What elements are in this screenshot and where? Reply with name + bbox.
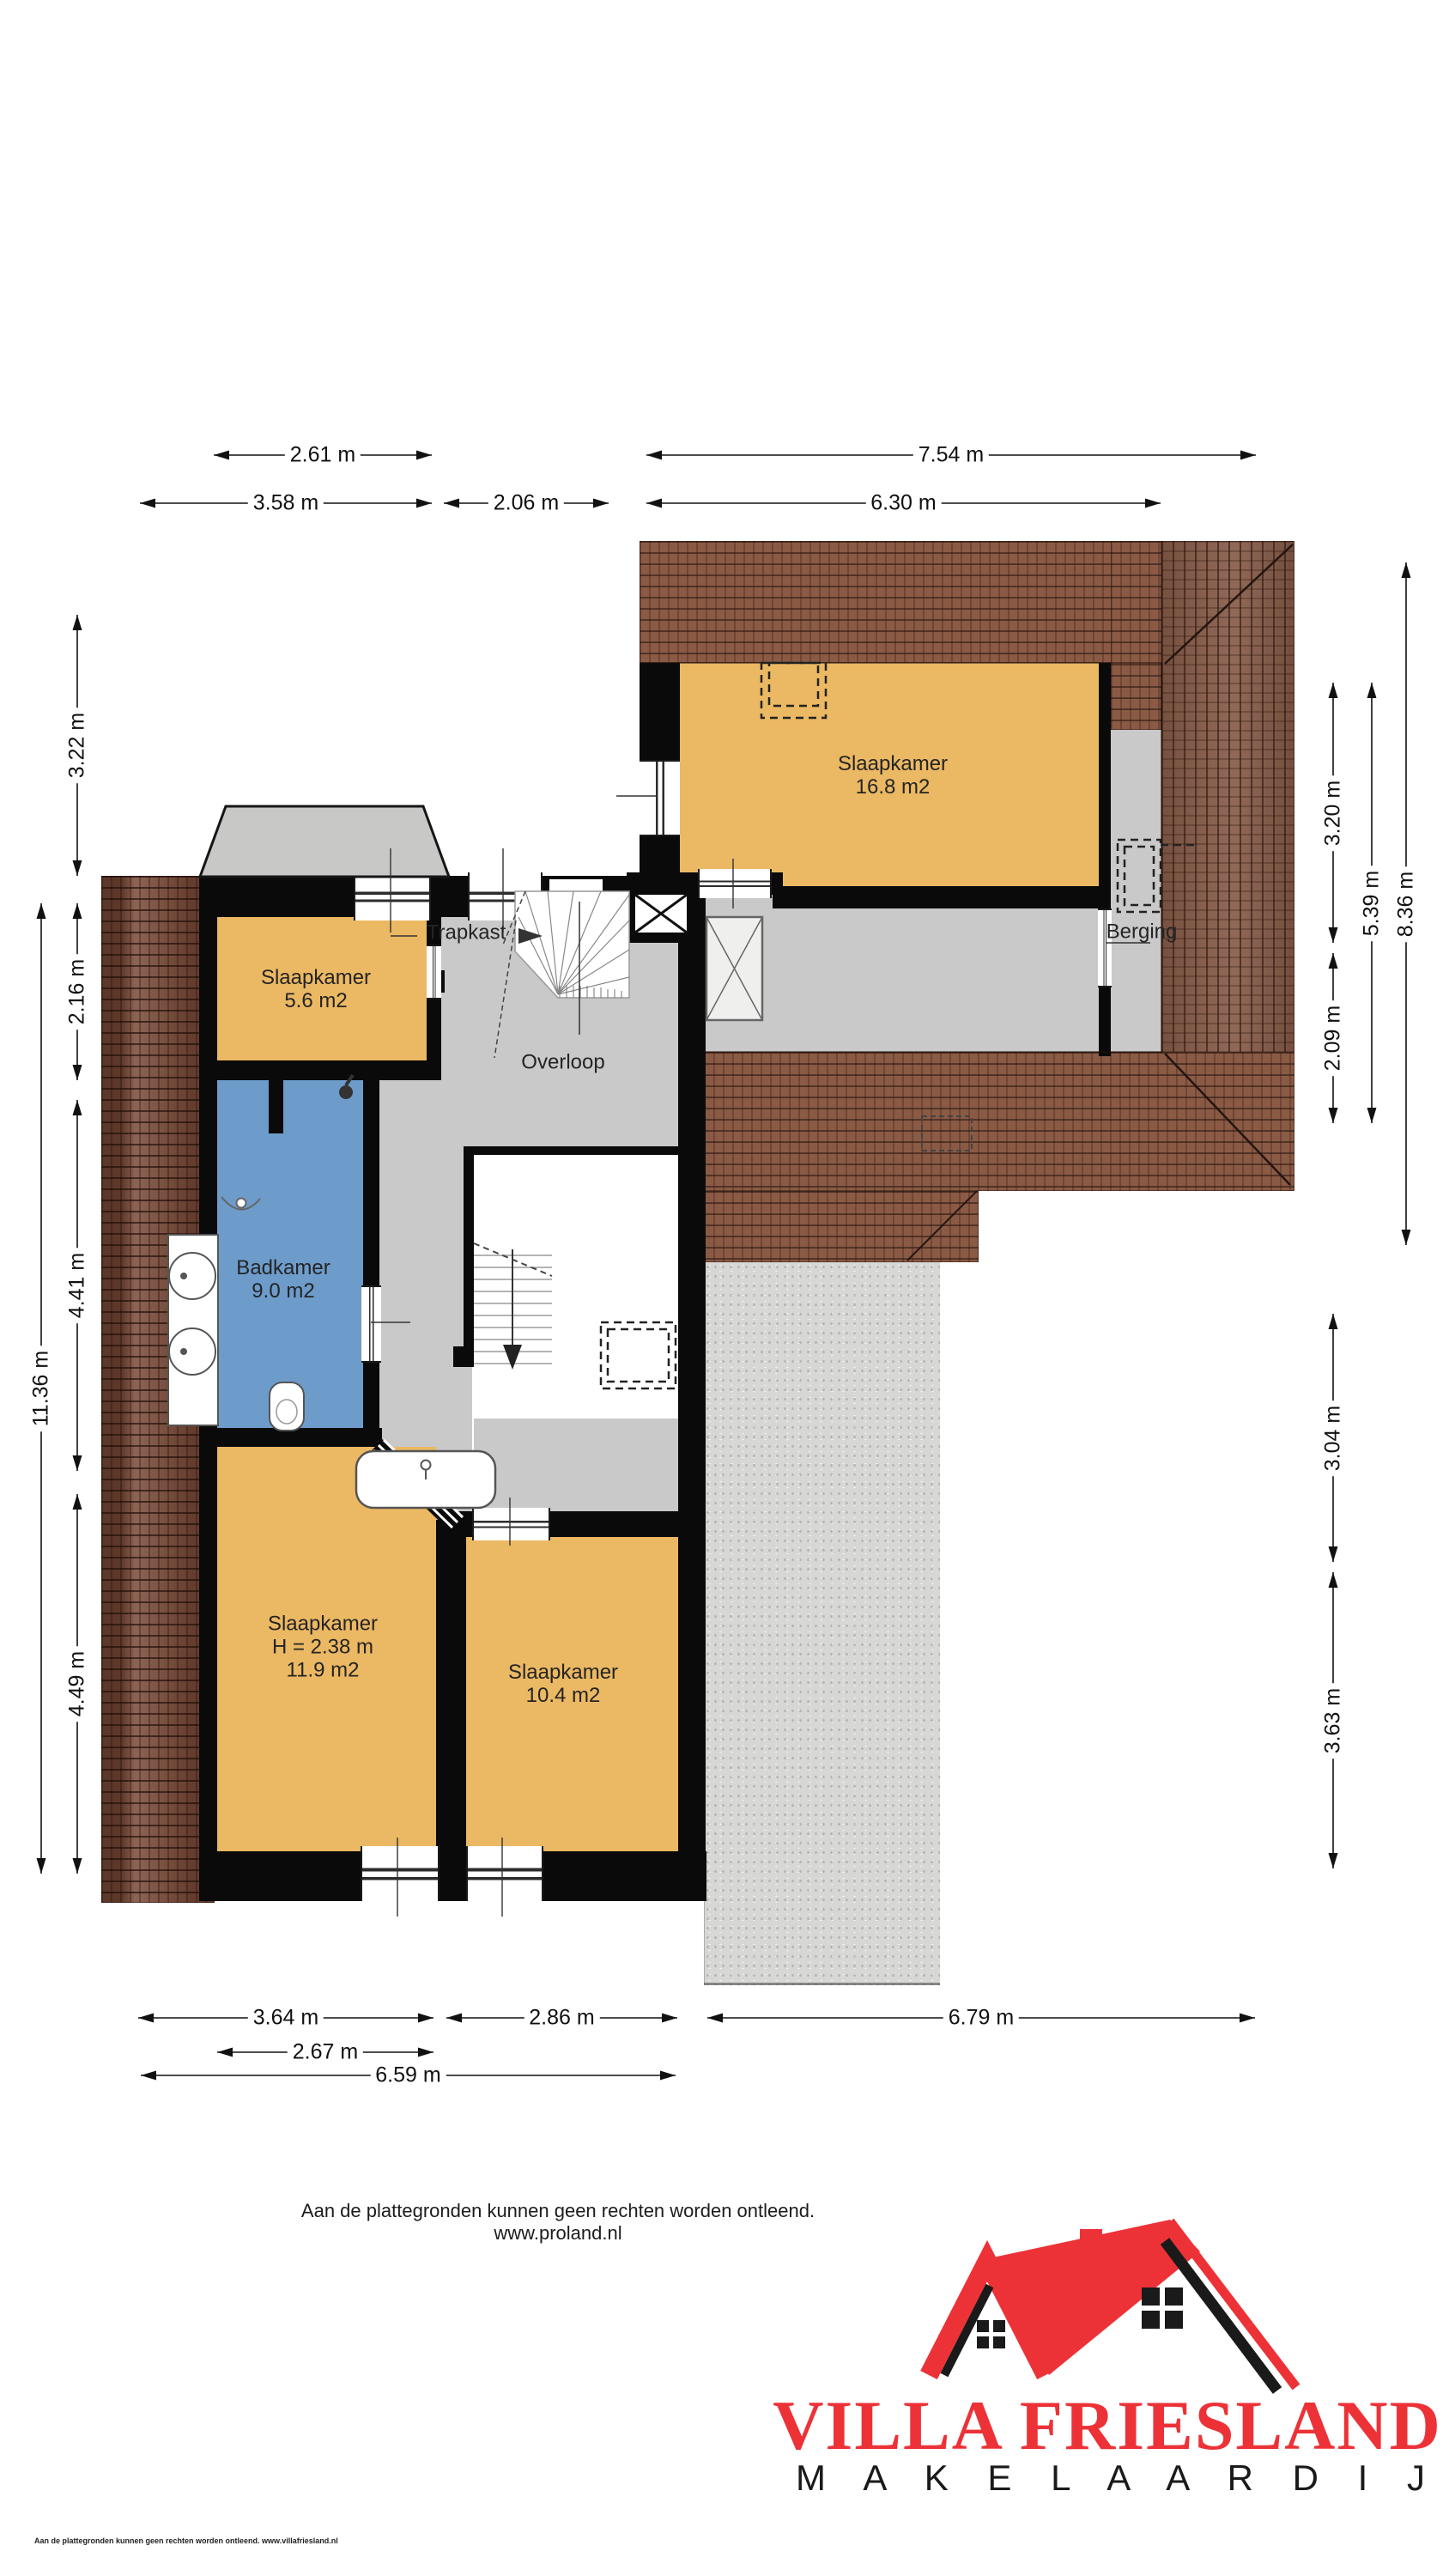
sink-basin xyxy=(169,1253,215,1299)
room-label-slaapkamer-5-6: Slaapkamer5.6 m2 xyxy=(261,966,371,1012)
dimension-label: 3.64 m xyxy=(248,2008,324,2029)
logo-window-right xyxy=(1142,2287,1183,2329)
room-label-slaapkamer-16-8: Slaapkamer16.8 m2 xyxy=(838,752,948,799)
dashed-berging xyxy=(1118,840,1195,912)
dimension-label: 7.54 m xyxy=(913,445,989,466)
dimension-label: 11.36 m xyxy=(31,1346,52,1431)
shower-drain xyxy=(237,1199,246,1208)
dimension-label: 3.04 m xyxy=(1323,1400,1344,1475)
dormer-gable xyxy=(200,806,449,877)
dashed-small-box xyxy=(922,1116,972,1151)
dimension-label: 3.20 m xyxy=(1323,775,1344,850)
fine-print: Aan de plattegronden kunnen geen rechten… xyxy=(34,2537,338,2545)
dimension-label: 8.36 m xyxy=(1396,866,1417,941)
dimension-label: 6.79 m xyxy=(943,2008,1019,2029)
bath-tap xyxy=(421,1461,431,1470)
roof-hip-seam xyxy=(1165,1054,1290,1185)
dimension-label: 5.39 m xyxy=(1361,865,1383,940)
sink-basin xyxy=(169,1328,215,1375)
dimension-label: 4.41 m xyxy=(67,1248,88,1323)
room-label-badkamer-9-0: Badkamer9.0 m2 xyxy=(236,1256,330,1303)
roof-hip-seam xyxy=(1165,544,1293,664)
room-label-berging: Berging xyxy=(1106,920,1178,944)
dimension-label: 2.61 m xyxy=(285,445,361,466)
dimension-label: 2.16 m xyxy=(67,954,88,1030)
stairs-upper xyxy=(503,891,629,1035)
room-label-slaapkamer-11-9: SlaapkamerH = 2.38 m11.9 m2 xyxy=(268,1613,378,1682)
dimension-label: 2.06 m xyxy=(488,493,564,514)
skylight-box xyxy=(706,917,762,1020)
dimension-label: 3.58 m xyxy=(248,493,324,514)
dimension-label: 3.22 m xyxy=(67,708,88,783)
dimension-label: 3.63 m xyxy=(1323,1682,1344,1758)
sink-tap xyxy=(180,1348,187,1355)
plan-overlay xyxy=(0,0,1449,2576)
sink-tap xyxy=(180,1273,187,1279)
room-label-overloop: Overloop xyxy=(521,1051,604,1074)
footer-disclaimer: Aan de plattegronden kunnen geen rechten… xyxy=(301,2200,815,2222)
logo-subtitle: M A K E L A A R D I J xyxy=(796,2458,1440,2499)
shower-head-icon xyxy=(339,1075,353,1099)
room-label-trapkast: Trapkast xyxy=(427,921,506,945)
dashed-hatch xyxy=(601,1322,676,1388)
dimension-label: 4.49 m xyxy=(67,1646,88,1722)
logo-house-icon xyxy=(929,2220,1296,2391)
roof-hip-seam xyxy=(907,1191,977,1261)
dashed-niche xyxy=(761,663,826,718)
logo-window-left xyxy=(977,2320,1005,2348)
stairs-down-arrow xyxy=(503,1345,522,1370)
room-label-slaapkamer-10-4: Slaapkamer10.4 m2 xyxy=(508,1661,618,1707)
dimension-label: 2.09 m xyxy=(1323,1000,1344,1076)
logo-title: VILLA FRIESLAND xyxy=(773,2385,1442,2466)
dimension-label: 2.86 m xyxy=(524,2008,599,2029)
dimension-label: 6.30 m xyxy=(865,493,941,514)
shaft-x xyxy=(635,895,687,933)
floorplan-canvas: Slaapkamer16.8 m2Slaapkamer5.6 m2Trapkas… xyxy=(0,0,1449,2576)
dimension-label: 6.59 m xyxy=(370,2065,446,2087)
dimension-label: 2.67 m xyxy=(288,2042,363,2063)
footer-website-link[interactable]: www.proland.nl xyxy=(494,2222,621,2245)
